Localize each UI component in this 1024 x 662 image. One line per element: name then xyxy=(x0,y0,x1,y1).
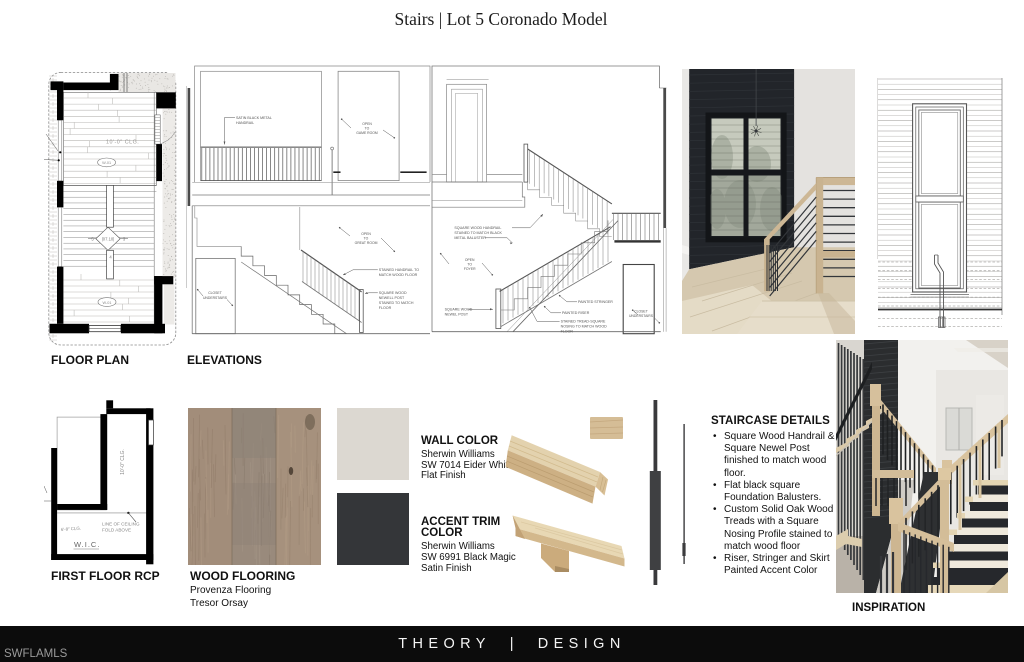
svg-text:NEWELL POST: NEWELL POST xyxy=(379,296,405,300)
svg-text:LINE OF CEILING: LINE OF CEILING xyxy=(102,522,140,527)
svg-text:OPEN: OPEN xyxy=(465,258,475,262)
svg-text:NOSING TO MATCH WOOD: NOSING TO MATCH WOOD xyxy=(561,325,608,329)
svg-text:UNDERSTAIRS: UNDERSTAIRS xyxy=(203,296,228,300)
svg-text:CLOSET: CLOSET xyxy=(634,310,648,314)
svg-text:W-01: W-01 xyxy=(102,161,111,165)
svg-text:FLOOR: FLOOR xyxy=(379,306,392,310)
svg-text:GREAT ROOM: GREAT ROOM xyxy=(355,241,378,245)
svg-text:10′-0″ CLG.: 10′-0″ CLG. xyxy=(106,140,139,146)
svg-text:6′-8″ CLG.: 6′-8″ CLG. xyxy=(61,526,82,532)
svg-text:PAINTED RISER: PAINTED RISER xyxy=(562,311,590,315)
svg-text:CLOSET: CLOSET xyxy=(208,291,222,295)
svg-text:OPEN: OPEN xyxy=(361,232,371,236)
svg-text:HANDRAIL: HANDRAIL xyxy=(236,121,254,125)
svg-text:SATIN BLACK METAL: SATIN BLACK METAL xyxy=(236,116,272,120)
svg-text:STAINED TO MATCH BLACK: STAINED TO MATCH BLACK xyxy=(454,231,502,235)
svg-text:SQUARE WOOD HANDRAIL: SQUARE WOOD HANDRAIL xyxy=(454,226,501,230)
svg-text:|07.10|: |07.10| xyxy=(102,236,115,241)
svg-text:STAINED TO MATCH: STAINED TO MATCH xyxy=(379,301,414,305)
svg-text:NEWEL POST: NEWEL POST xyxy=(445,313,469,317)
svg-text:FOLD ABOVE: FOLD ABOVE xyxy=(102,528,131,533)
svg-text:GAME ROOM: GAME ROOM xyxy=(356,131,378,135)
svg-text:OPEN: OPEN xyxy=(362,122,372,126)
svg-text:STAINED HANDRAIL TO: STAINED HANDRAIL TO xyxy=(379,268,419,272)
svg-text:STAINED TREAD-SQUARE: STAINED TREAD-SQUARE xyxy=(561,320,606,324)
svg-text:FOYER: FOYER xyxy=(464,267,476,271)
svg-text:MATCH WOOD FLOOR: MATCH WOOD FLOOR xyxy=(379,273,418,277)
svg-text:UNDERSTAIRS: UNDERSTAIRS xyxy=(629,314,654,318)
svg-text:SQUARE WOOD: SQUARE WOOD xyxy=(379,291,407,295)
svg-text:PAINTED STRINGER: PAINTED STRINGER xyxy=(578,300,613,304)
svg-text:W-01: W-01 xyxy=(102,301,111,305)
svg-text:TO: TO xyxy=(365,127,370,131)
svg-text:TO: TO xyxy=(467,263,472,267)
svg-text:FLOOR: FLOOR xyxy=(561,330,574,334)
svg-text:METAL BALUSTER: METAL BALUSTER xyxy=(454,236,486,240)
svg-text:TO: TO xyxy=(364,237,369,241)
svg-text:W.I.C.: W.I.C. xyxy=(74,540,100,549)
svg-text:10′-0″ CLG.: 10′-0″ CLG. xyxy=(120,449,126,475)
